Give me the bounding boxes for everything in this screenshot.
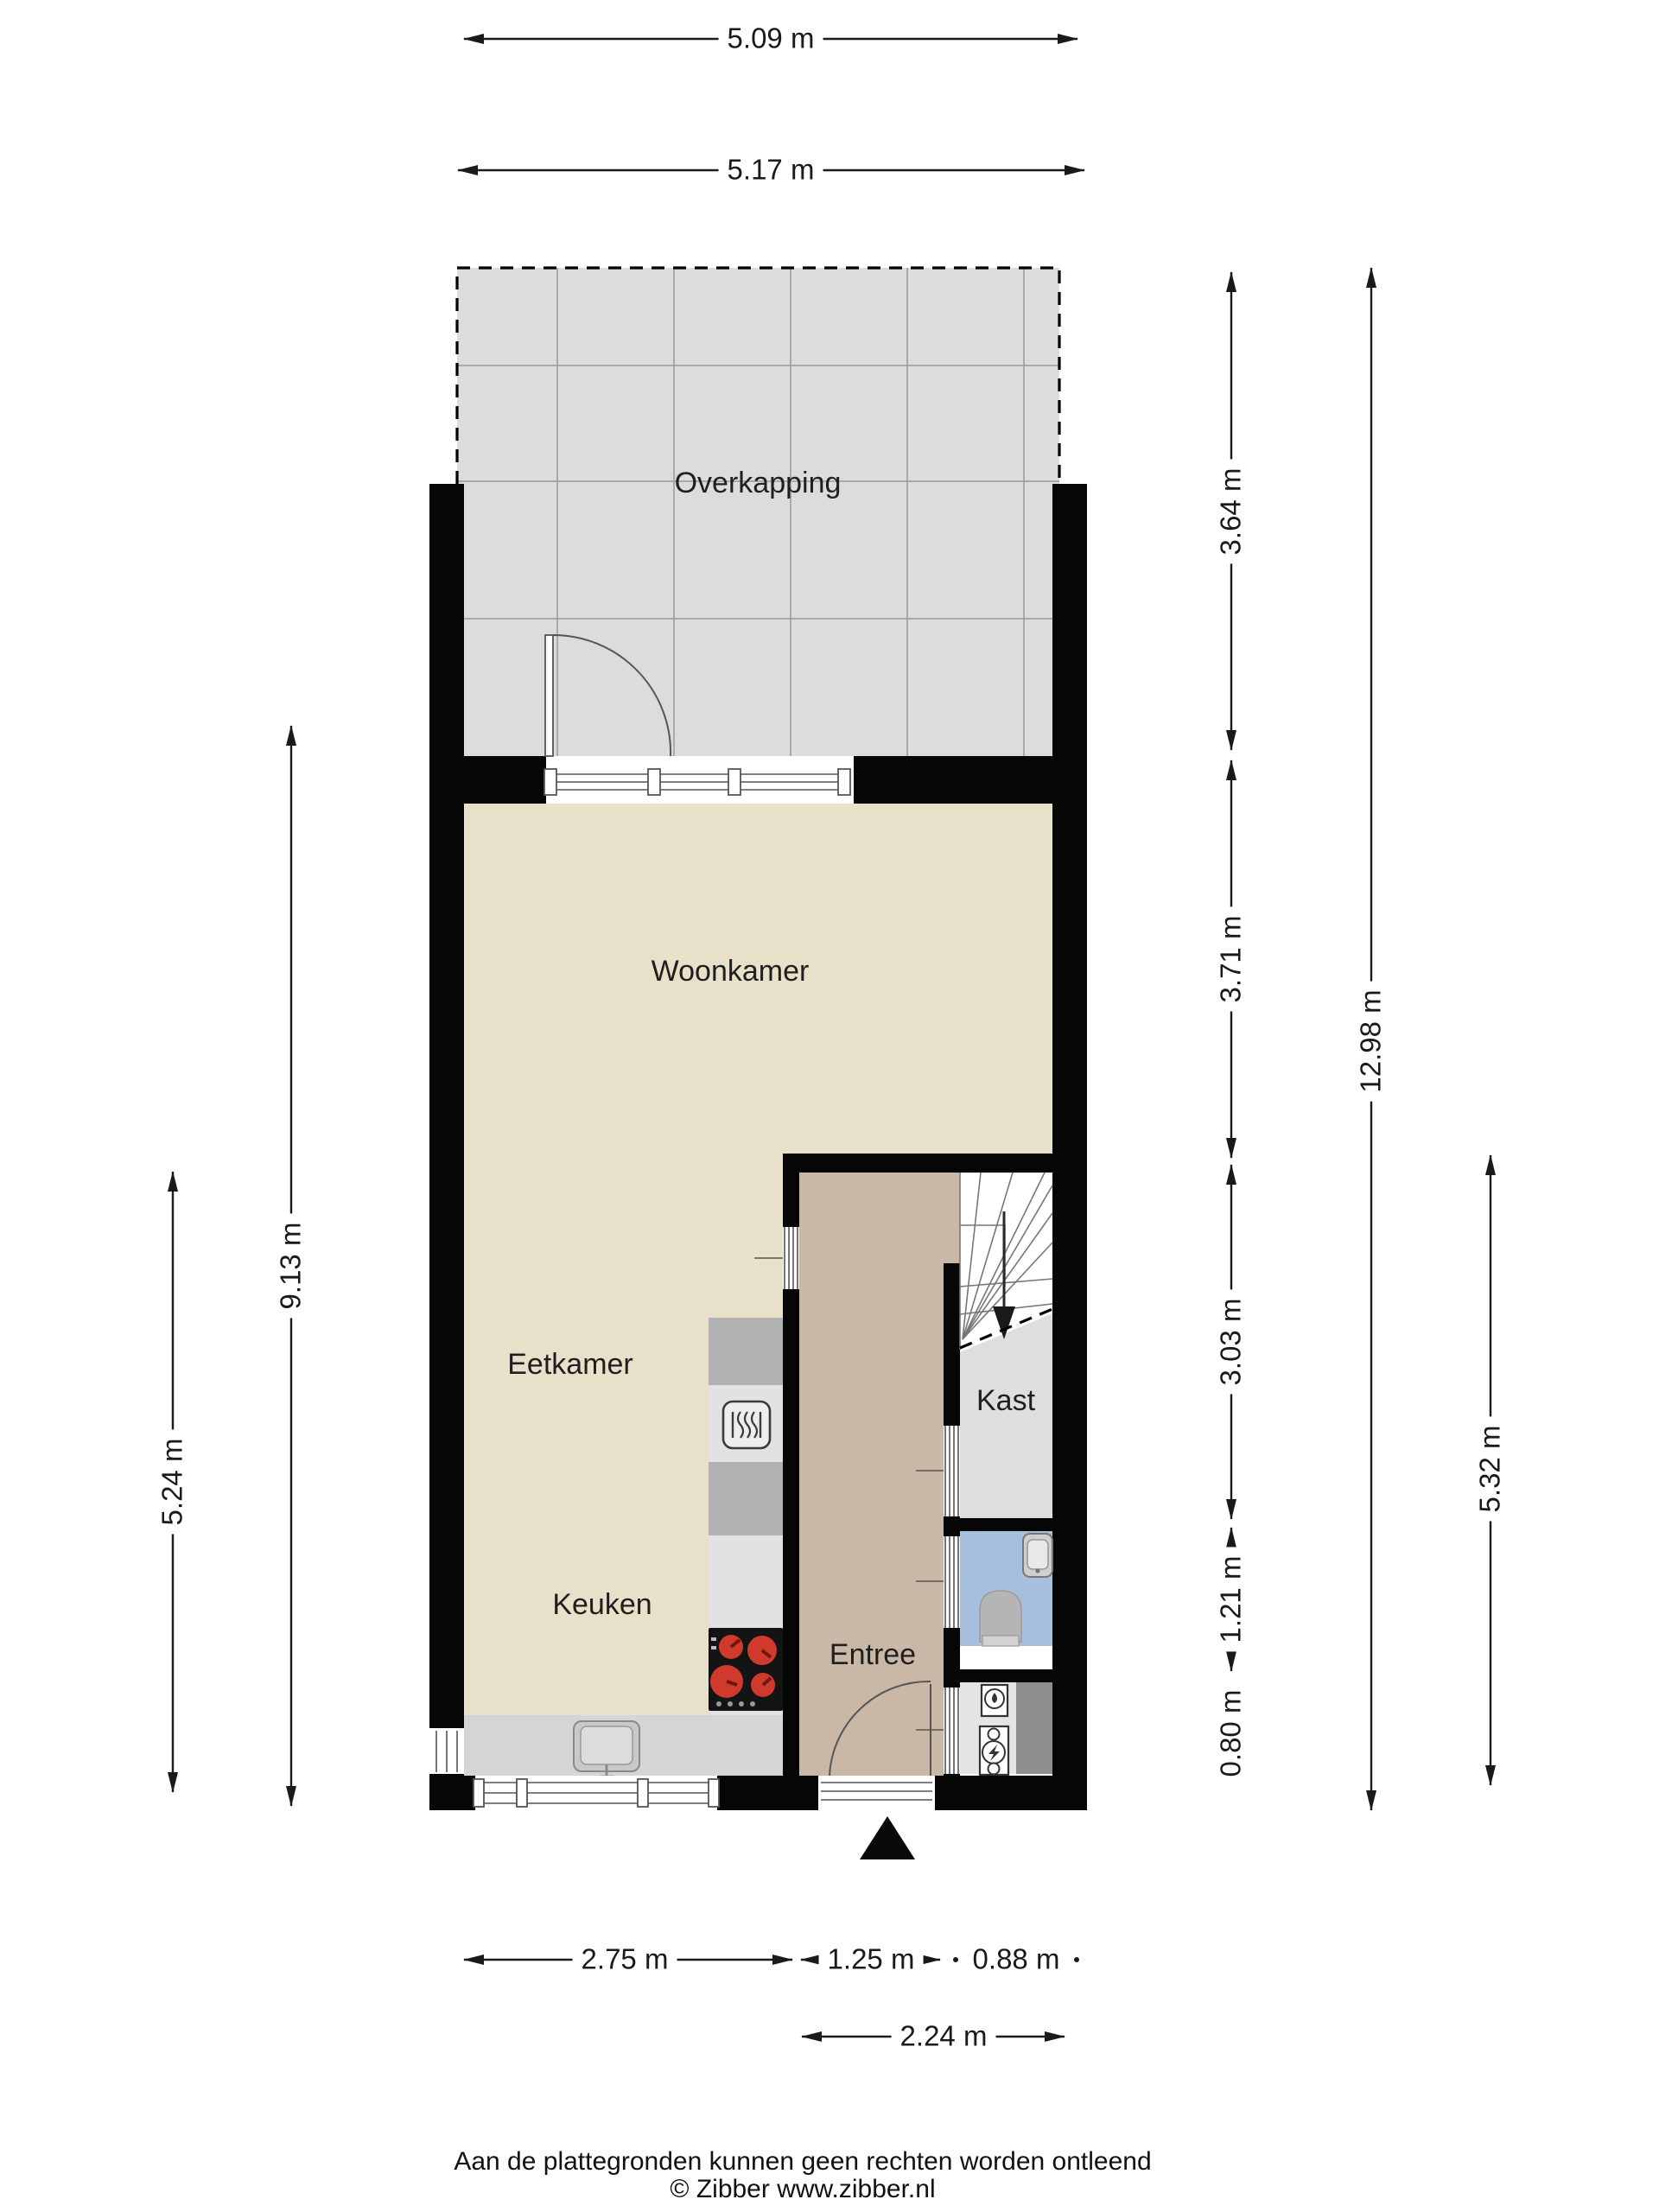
dim-label-top-interior: 5.09 m [719, 23, 823, 55]
washbasin-icon [1023, 1534, 1052, 1577]
room-label-eetkamer: Eetkamer [507, 1350, 633, 1381]
bathroom-threshold [960, 1646, 1052, 1669]
dim-label-left-lower: 5.24 m [157, 1430, 189, 1535]
dim-label-right-woonkamer: 3.71 m [1216, 907, 1248, 1012]
utility-cabinet [1016, 1682, 1052, 1774]
dim-label-right-bathroom: 1.21 m [1216, 1548, 1248, 1652]
room-label-keuken: Keuken [552, 1590, 652, 1621]
oven-icon [723, 1402, 770, 1448]
dim-label-bottom-total: 2.24 m [892, 2021, 996, 2053]
room-label-woonkamer: Woonkamer [652, 957, 810, 988]
dim-label-right-total: 12.98 m [1356, 981, 1388, 1101]
footer-copyright: © Zibber www.zibber.nl [670, 2175, 935, 2204]
room-label-kast: Kast [976, 1386, 1035, 1417]
floor-plan-svg [0, 0, 1659, 2212]
dim-label-right-lower: 5.32 m [1475, 1417, 1507, 1522]
dim-label-right-overkapping: 3.64 m [1216, 460, 1248, 564]
dim-label-top-exterior: 5.17 m [719, 155, 823, 187]
sliding-door-icon [544, 756, 854, 804]
footer-disclaimer: Aan de plattegronden kunnen geen rechten… [454, 2147, 1151, 2177]
entrance-marker-icon [860, 1816, 915, 1859]
sink-icon [574, 1721, 639, 1778]
kitchen-window-icon [474, 1776, 719, 1810]
ventilation-unit-icon [980, 1726, 1008, 1775]
dim-label-bottom-entree: 1.25 m [819, 1944, 924, 1976]
dim-label-right-kast: 3.03 m [1216, 1290, 1248, 1395]
dim-label-left-total: 9.13 m [276, 1214, 308, 1319]
side-window-icon [429, 1728, 464, 1774]
room-label-entree: Entree [829, 1640, 916, 1671]
dim-label-bottom-keuken: 2.75 m [573, 1944, 677, 1976]
cooktop-icon [709, 1628, 783, 1711]
room-label-overkapping: Overkapping [675, 468, 842, 499]
toilet-icon [980, 1591, 1021, 1646]
boiler-icon [982, 1685, 1007, 1716]
dim-label-right-utility: 0.80 m [1216, 1681, 1248, 1786]
room-entree-area [799, 1173, 960, 1776]
dim-label-bottom-right: 0.88 m [964, 1944, 1069, 1976]
floorplan-page: Overkapping Woonkamer Eetkamer Keuken En… [0, 0, 1659, 2212]
